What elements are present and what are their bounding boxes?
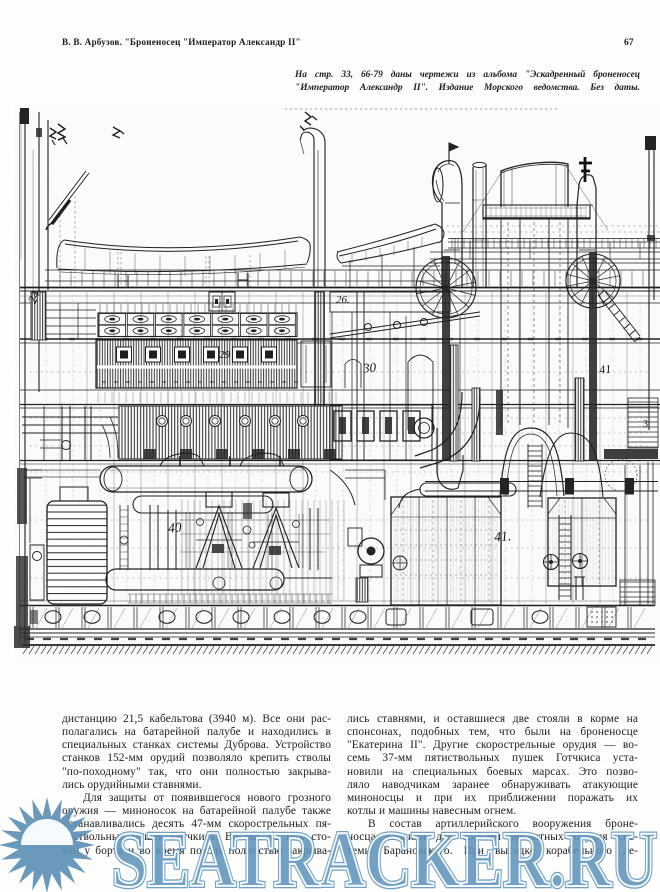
svg-text:SEATRACKER.RU: SEATRACKER.RU [112, 817, 657, 892]
